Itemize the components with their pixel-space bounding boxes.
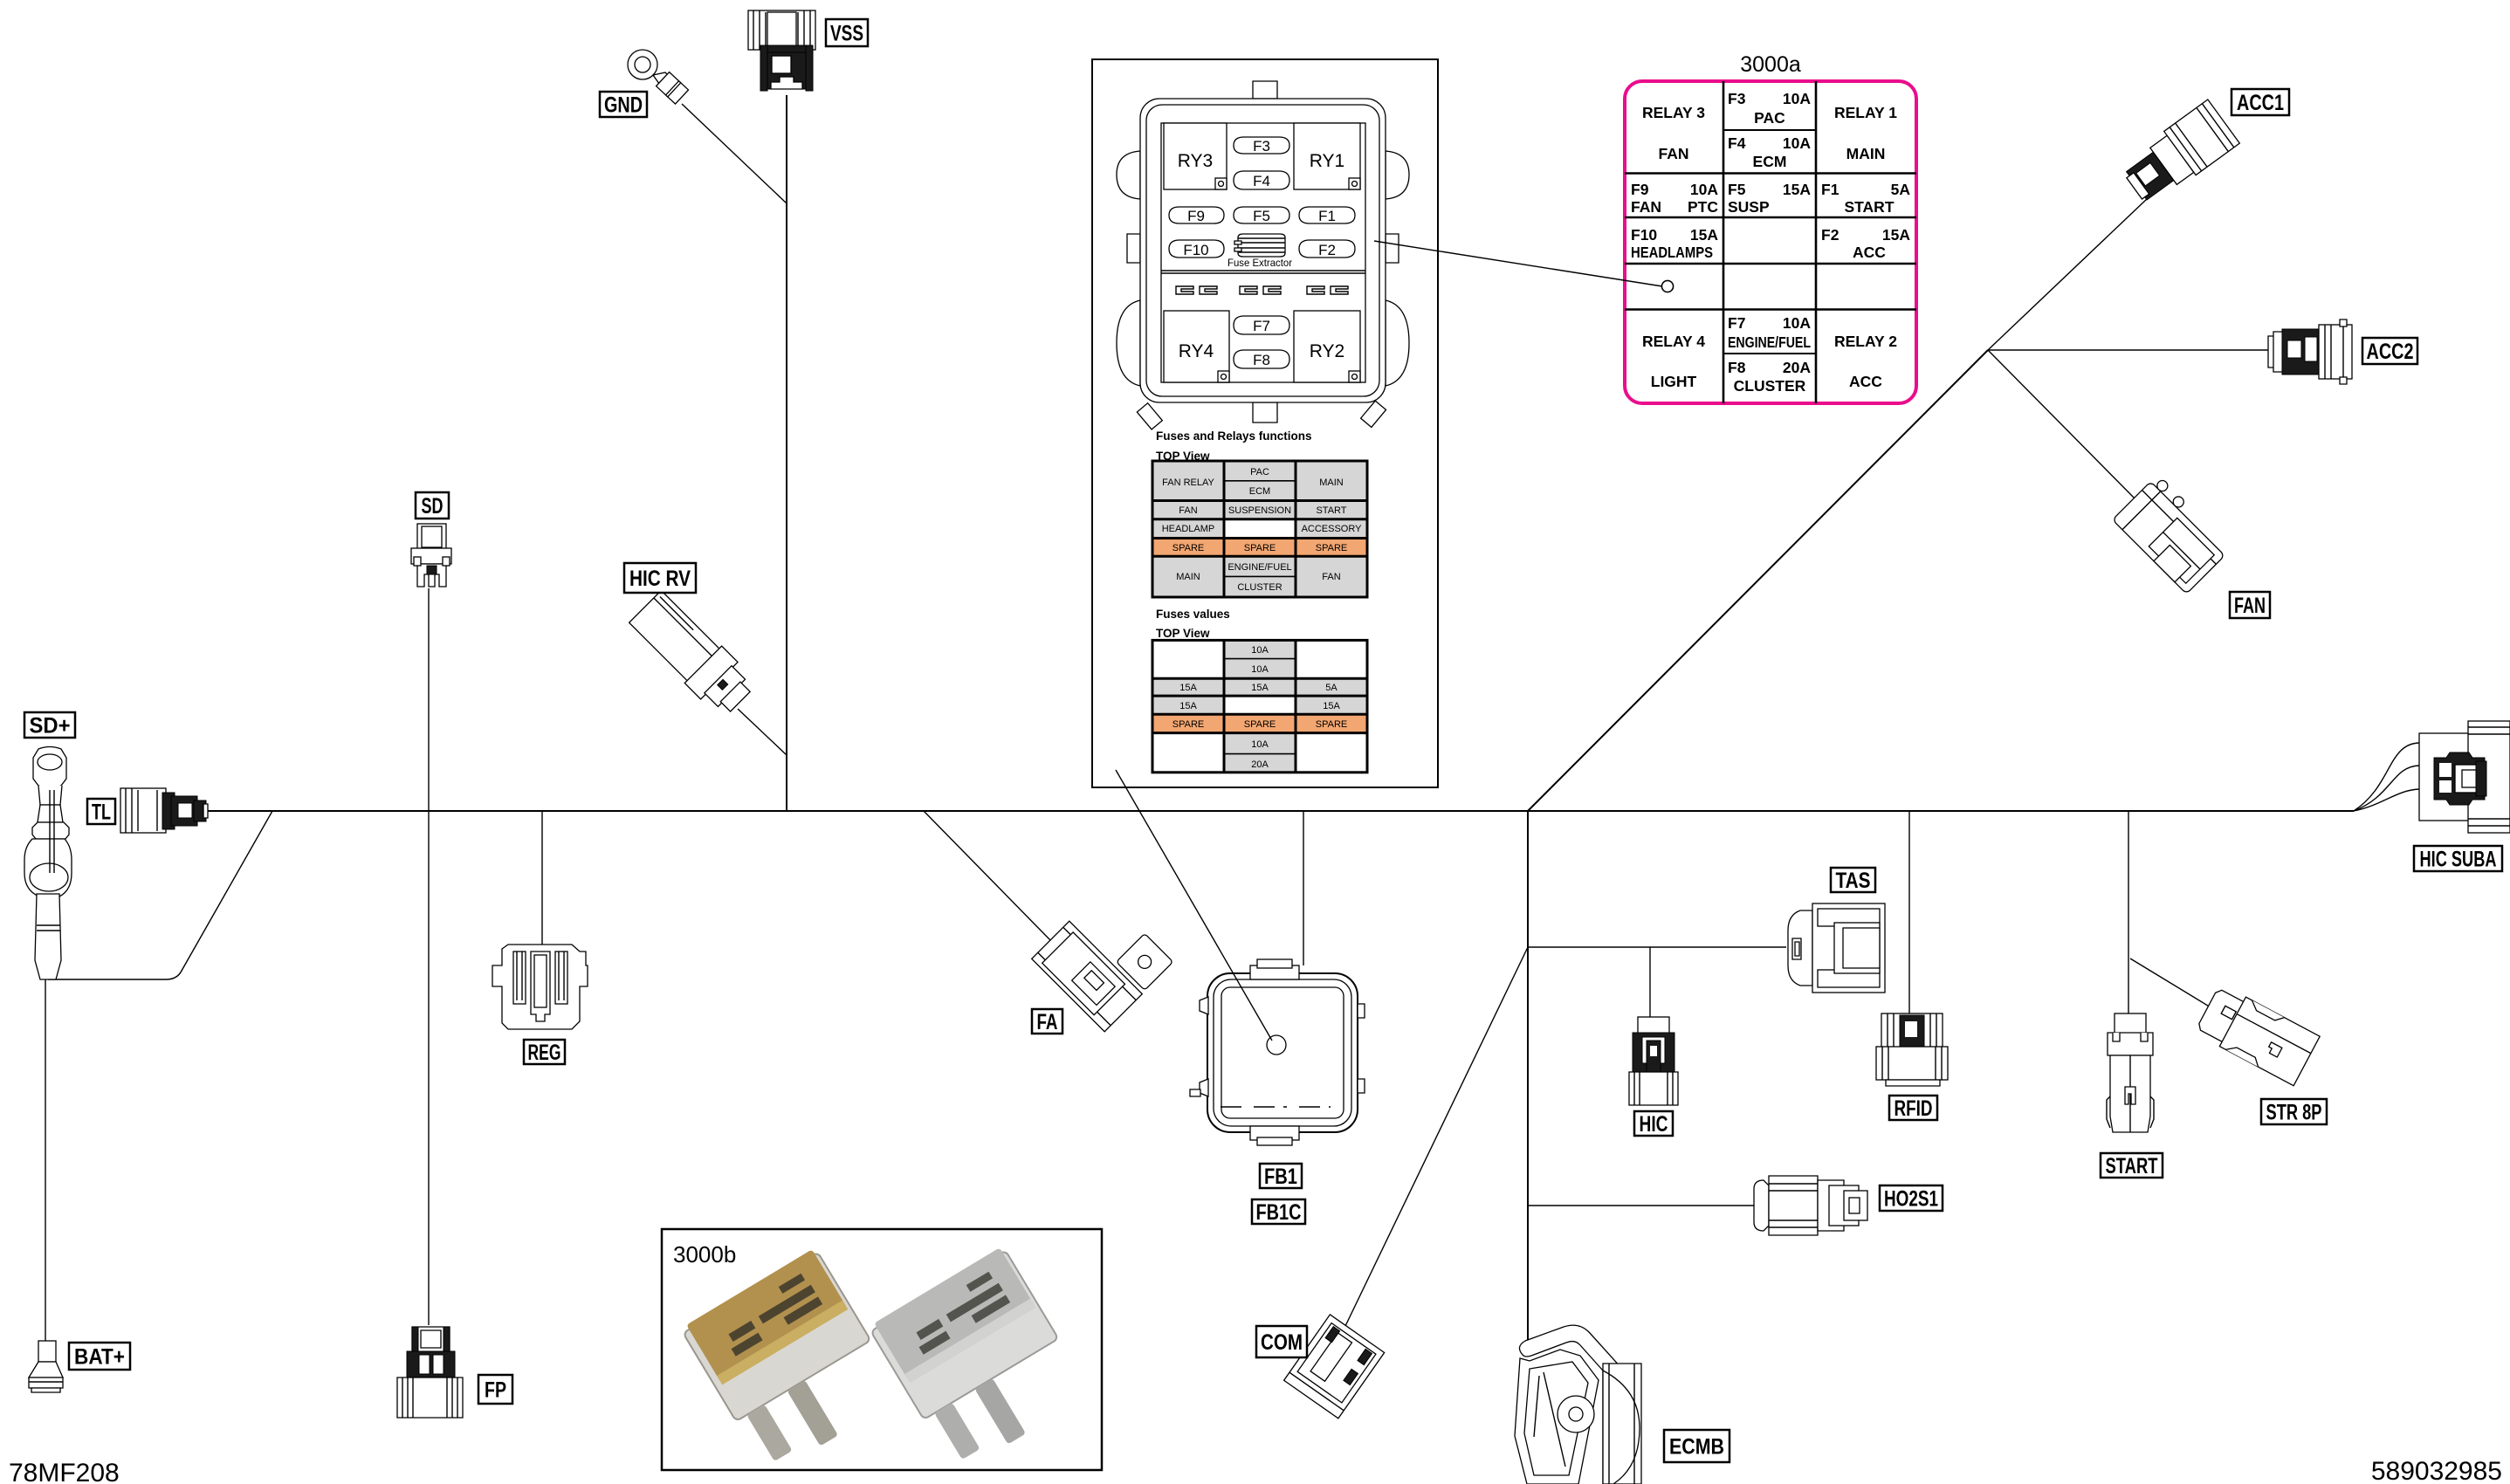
svg-text:F8: F8 bbox=[1728, 359, 1746, 376]
svg-text:10A: 10A bbox=[1251, 645, 1269, 656]
svg-text:20A: 20A bbox=[1251, 759, 1269, 770]
svg-text:HIC RV: HIC RV bbox=[629, 567, 691, 591]
svg-text:RY2: RY2 bbox=[1310, 341, 1344, 361]
svg-text:15A: 15A bbox=[1690, 226, 1718, 244]
svg-text:STR 8P: STR 8P bbox=[2266, 1101, 2322, 1125]
svg-text:ACCESSORY: ACCESSORY bbox=[1302, 524, 1363, 534]
svg-text:FB1C: FB1C bbox=[1256, 1200, 1302, 1225]
svg-text:RY3: RY3 bbox=[1178, 151, 1213, 171]
svg-text:START: START bbox=[2106, 1154, 2158, 1178]
svg-text:ECMB: ECMB bbox=[1669, 1435, 1724, 1460]
svg-text:FAN RELAY: FAN RELAY bbox=[1162, 477, 1214, 488]
svg-text:15A: 15A bbox=[1783, 181, 1811, 198]
svg-text:LIGHT: LIGHT bbox=[1651, 373, 1697, 390]
svg-text:F9: F9 bbox=[1187, 208, 1205, 224]
svg-text:ACC: ACC bbox=[1849, 373, 1882, 390]
svg-text:HO2S1: HO2S1 bbox=[1884, 1187, 1938, 1212]
svg-text:START: START bbox=[1844, 198, 1894, 216]
svg-text:PTC: PTC bbox=[1688, 198, 1718, 216]
svg-text:TL: TL bbox=[92, 800, 111, 825]
svg-text:TAS: TAS bbox=[1836, 869, 1871, 893]
svg-text:SPARE: SPARE bbox=[1316, 719, 1347, 730]
svg-text:Fuses and Relays functions: Fuses and Relays functions bbox=[1156, 429, 1312, 443]
svg-text:F4: F4 bbox=[1728, 134, 1746, 152]
svg-text:ECM: ECM bbox=[1249, 486, 1270, 497]
svg-text:ENGINE/FUEL: ENGINE/FUEL bbox=[1728, 333, 1811, 351]
svg-text:REG: REG bbox=[528, 1041, 561, 1065]
svg-text:RELAY 2: RELAY 2 bbox=[1834, 333, 1897, 350]
svg-text:15A: 15A bbox=[1323, 701, 1340, 711]
svg-text:F5: F5 bbox=[1253, 208, 1270, 224]
svg-text:HIC SUBA: HIC SUBA bbox=[2420, 848, 2497, 872]
svg-text:Fuses values: Fuses values bbox=[1156, 608, 1230, 621]
svg-text:SPARE: SPARE bbox=[1316, 543, 1347, 553]
svg-text:HEADLAMPS: HEADLAMPS bbox=[1631, 244, 1713, 261]
svg-text:SUSP: SUSP bbox=[1728, 198, 1770, 216]
svg-text:FAN: FAN bbox=[1322, 572, 1340, 582]
svg-text:15A: 15A bbox=[1882, 226, 1910, 244]
svg-text:15A: 15A bbox=[1179, 683, 1197, 693]
svg-text:F10: F10 bbox=[1631, 226, 1657, 244]
svg-text:F5: F5 bbox=[1728, 181, 1746, 198]
svg-text:FA: FA bbox=[1037, 1010, 1058, 1034]
svg-text:TOP View: TOP View bbox=[1156, 627, 1210, 640]
svg-text:F1: F1 bbox=[1318, 208, 1336, 224]
svg-text:F3: F3 bbox=[1253, 138, 1270, 155]
svg-text:78MF208: 78MF208 bbox=[9, 1459, 120, 1484]
svg-text:MAIN: MAIN bbox=[1846, 145, 1886, 162]
svg-text:CLUSTER: CLUSTER bbox=[1237, 582, 1282, 593]
svg-text:F10: F10 bbox=[1183, 242, 1208, 258]
svg-text:RY4: RY4 bbox=[1179, 341, 1214, 361]
svg-text:FP: FP bbox=[485, 1378, 506, 1403]
svg-text:10A: 10A bbox=[1251, 664, 1269, 675]
svg-text:ENGINE/FUEL: ENGINE/FUEL bbox=[1227, 562, 1291, 573]
svg-text:15A: 15A bbox=[1179, 701, 1197, 711]
svg-text:SPARE: SPARE bbox=[1172, 719, 1204, 730]
svg-text:10A: 10A bbox=[1783, 90, 1811, 107]
svg-text:Fuse Extractor: Fuse Extractor bbox=[1227, 257, 1292, 269]
svg-text:MAIN: MAIN bbox=[1176, 572, 1200, 582]
svg-text:FAN: FAN bbox=[1179, 505, 1197, 516]
svg-text:SPARE: SPARE bbox=[1244, 543, 1276, 553]
svg-text:RY1: RY1 bbox=[1310, 151, 1344, 171]
svg-text:RELAY 3: RELAY 3 bbox=[1642, 104, 1705, 121]
svg-text:15A: 15A bbox=[1251, 683, 1269, 693]
svg-text:10A: 10A bbox=[1783, 314, 1811, 332]
svg-text:HEADLAMP: HEADLAMP bbox=[1162, 524, 1215, 534]
svg-text:FAN: FAN bbox=[1659, 145, 1689, 162]
svg-text:10A: 10A bbox=[1783, 134, 1811, 152]
svg-text:F4: F4 bbox=[1253, 173, 1270, 189]
svg-text:SPARE: SPARE bbox=[1172, 543, 1204, 553]
svg-text:MAIN: MAIN bbox=[1319, 477, 1344, 488]
svg-text:GND: GND bbox=[604, 93, 643, 118]
svg-text:RELAY 4: RELAY 4 bbox=[1642, 333, 1705, 350]
svg-text:SD+: SD+ bbox=[30, 714, 71, 739]
svg-text:F2: F2 bbox=[1318, 242, 1336, 258]
svg-text:COM: COM bbox=[1261, 1330, 1303, 1355]
svg-text:CLUSTER: CLUSTER bbox=[1734, 377, 1806, 395]
svg-text:20A: 20A bbox=[1783, 359, 1811, 376]
svg-text:RELAY 1: RELAY 1 bbox=[1834, 104, 1897, 121]
svg-text:F7: F7 bbox=[1728, 314, 1745, 332]
svg-text:10A: 10A bbox=[1690, 181, 1718, 198]
svg-text:VSS: VSS bbox=[830, 22, 863, 46]
svg-text:SPARE: SPARE bbox=[1244, 719, 1276, 730]
svg-text:BAT+: BAT+ bbox=[74, 1345, 125, 1370]
svg-text:ACC2: ACC2 bbox=[2367, 340, 2414, 364]
svg-text:3000b: 3000b bbox=[673, 1241, 736, 1268]
svg-text:F7: F7 bbox=[1253, 318, 1270, 334]
svg-text:RFID: RFID bbox=[1895, 1096, 1933, 1121]
svg-text:3000a: 3000a bbox=[1740, 52, 1801, 77]
svg-text:START: START bbox=[1316, 505, 1346, 516]
svg-text:F8: F8 bbox=[1253, 352, 1270, 368]
svg-text:F3: F3 bbox=[1728, 90, 1746, 107]
svg-text:FAN: FAN bbox=[2234, 594, 2266, 618]
svg-text:HIC: HIC bbox=[1640, 1112, 1668, 1137]
svg-text:ACC1: ACC1 bbox=[2237, 91, 2284, 115]
svg-text:FB1: FB1 bbox=[1264, 1165, 1297, 1189]
svg-text:PAC: PAC bbox=[1754, 109, 1785, 127]
svg-text:F1: F1 bbox=[1821, 181, 1840, 198]
svg-text:10A: 10A bbox=[1251, 739, 1269, 750]
svg-text:5A: 5A bbox=[1325, 683, 1338, 693]
svg-text:589032985: 589032985 bbox=[2371, 1457, 2502, 1484]
svg-text:SUSPENSION: SUSPENSION bbox=[1228, 505, 1291, 516]
svg-text:PAC: PAC bbox=[1250, 467, 1269, 477]
svg-text:SD: SD bbox=[422, 494, 444, 519]
svg-text:F9: F9 bbox=[1631, 181, 1649, 198]
svg-text:ECM: ECM bbox=[1753, 153, 1787, 170]
svg-text:ACC: ACC bbox=[1853, 244, 1886, 261]
svg-text:FAN: FAN bbox=[1631, 198, 1661, 216]
svg-text:F2: F2 bbox=[1821, 226, 1840, 244]
svg-text:5A: 5A bbox=[1891, 181, 1911, 198]
